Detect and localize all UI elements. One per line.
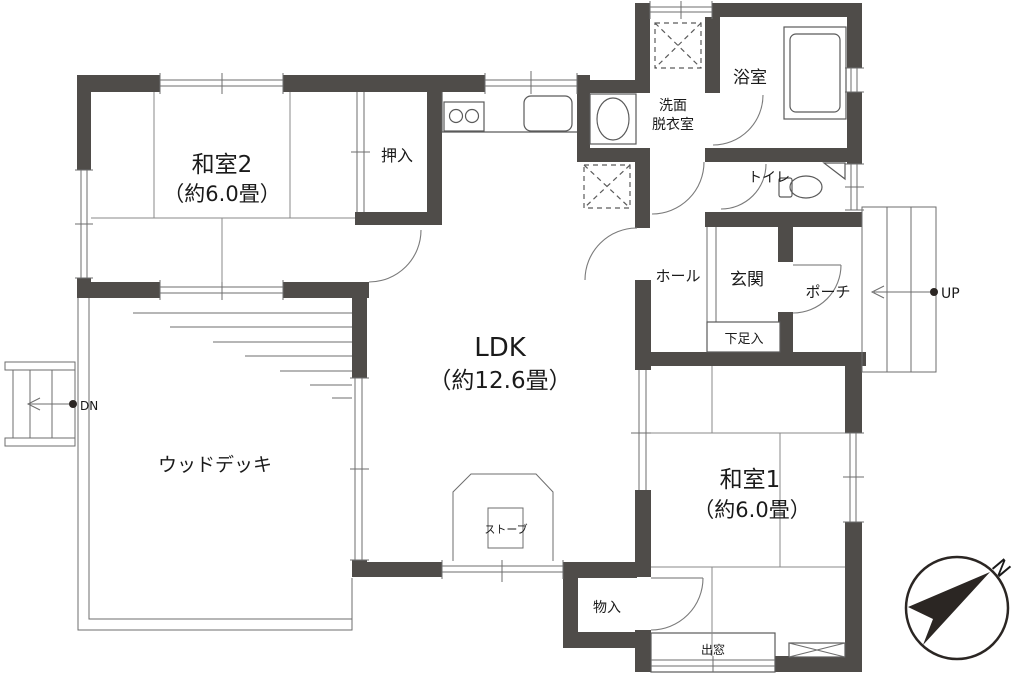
label-bathroom: 浴室: [733, 68, 767, 88]
label-toilet: トイレ: [748, 170, 790, 186]
stairs-up: [862, 207, 938, 372]
sliding-glass-door-icon: [350, 378, 369, 560]
window-icon: [650, 1, 712, 19]
genkan-step-line: [707, 227, 716, 322]
window-icon: [845, 68, 864, 92]
floorplan-drawing: 和室2 （約6.0畳） 押入 LDK （約12.6畳） 洗面 脱衣室 浴室 トイ…: [0, 0, 1023, 679]
floorplan-canvas: 和室2 （約6.0畳） 押入 LDK （約12.6畳） 洗面 脱衣室 浴室 トイ…: [0, 0, 1023, 679]
label-getabako: 下足入: [724, 332, 763, 347]
window-icon: [843, 433, 864, 522]
door-washroom-hall: [652, 162, 704, 214]
compass-needle-icon: [908, 572, 990, 645]
door-bathroom: [713, 95, 763, 145]
window-icon: [845, 164, 864, 210]
room-washitsu2-area: [91, 92, 355, 282]
label-north: N: [987, 554, 1015, 581]
washing-machine-space-icon: [655, 23, 701, 68]
label-mononyu: 物入: [593, 600, 621, 616]
window-icon: [485, 71, 577, 94]
label-genkan: 玄関: [730, 270, 764, 290]
wash-basin-icon: [590, 94, 636, 144]
label-porch: ポーチ: [805, 283, 850, 301]
room-washitsu1-area: [651, 366, 845, 656]
label-senmen-2: 脱衣室: [652, 116, 694, 133]
window-icon: [442, 560, 563, 582]
bathtub-icon: [784, 27, 846, 119]
label-up: UP: [941, 286, 960, 302]
label-hall: ホール: [655, 267, 700, 285]
toilet-corner-shelf: [824, 163, 845, 179]
window-icon: [160, 280, 283, 300]
window-icon: [160, 73, 283, 94]
window-icon: [75, 170, 93, 278]
label-senmen-1: 洗面: [659, 98, 687, 114]
door-ldk-hall: [585, 228, 637, 280]
stairs-down: [5, 362, 77, 446]
fusuma-ldk-washitsu1: [631, 370, 654, 490]
room-wood-deck-area: [89, 298, 352, 619]
room-ldk-area: [367, 92, 577, 562]
refrigerator-space-icon: [584, 165, 630, 208]
